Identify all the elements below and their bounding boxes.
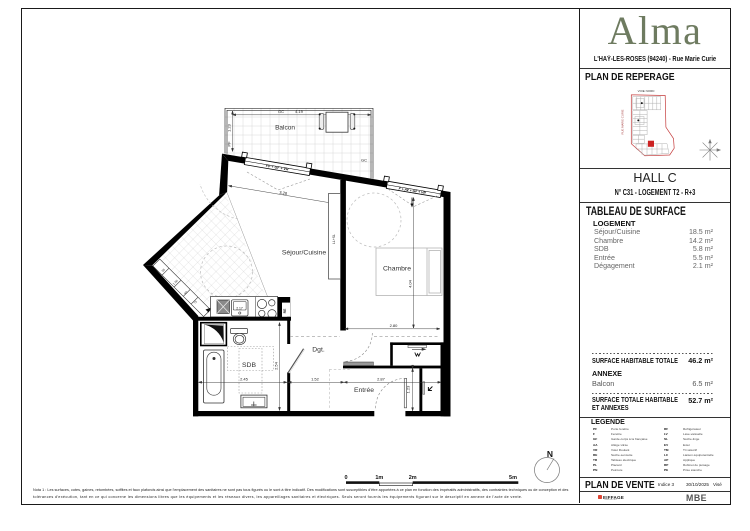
svg-text:2m: 2m bbox=[409, 475, 417, 481]
svg-text:3.28: 3.28 bbox=[279, 190, 288, 196]
svg-text:2.45: 2.45 bbox=[240, 377, 249, 382]
svg-text:2.80: 2.80 bbox=[390, 323, 399, 328]
svg-text:Séjour/Cuisine: Séjour/Cuisine bbox=[282, 250, 326, 257]
svg-text:GC: GC bbox=[361, 158, 367, 163]
svg-text:2.17: 2.17 bbox=[236, 307, 243, 311]
svg-text:Entrée: Entrée bbox=[354, 387, 374, 394]
svg-text:RE: RE bbox=[283, 308, 287, 313]
svg-text:5m: 5m bbox=[509, 475, 517, 481]
svg-text:0: 0 bbox=[344, 475, 347, 481]
svg-text:1.23: 1.23 bbox=[227, 123, 232, 132]
svg-text:1m: 1m bbox=[375, 475, 383, 481]
svg-text:RUE MARIE CURIE: RUE MARIE CURIE bbox=[621, 109, 625, 134]
svg-text:LL+SL: LL+SL bbox=[332, 234, 336, 244]
svg-text:4.19: 4.19 bbox=[295, 109, 304, 114]
svg-text:1.23: 1.23 bbox=[406, 385, 411, 394]
svg-text:Balcon: Balcon bbox=[275, 125, 295, 132]
svg-text:SDB: SDB bbox=[242, 362, 256, 369]
svg-text:Dgt.: Dgt. bbox=[312, 347, 325, 354]
svg-text:PF: PF bbox=[227, 141, 232, 147]
svg-text:2.87: 2.87 bbox=[377, 377, 386, 382]
svg-text:4.04: 4.04 bbox=[408, 279, 413, 288]
svg-text:GC: GC bbox=[278, 109, 284, 114]
svg-text:VOIE NORD: VOIE NORD bbox=[638, 89, 656, 93]
svg-text:Chambre: Chambre bbox=[383, 266, 411, 273]
svg-text:1.52: 1.52 bbox=[311, 377, 320, 382]
svg-text:2.54: 2.54 bbox=[274, 361, 279, 370]
